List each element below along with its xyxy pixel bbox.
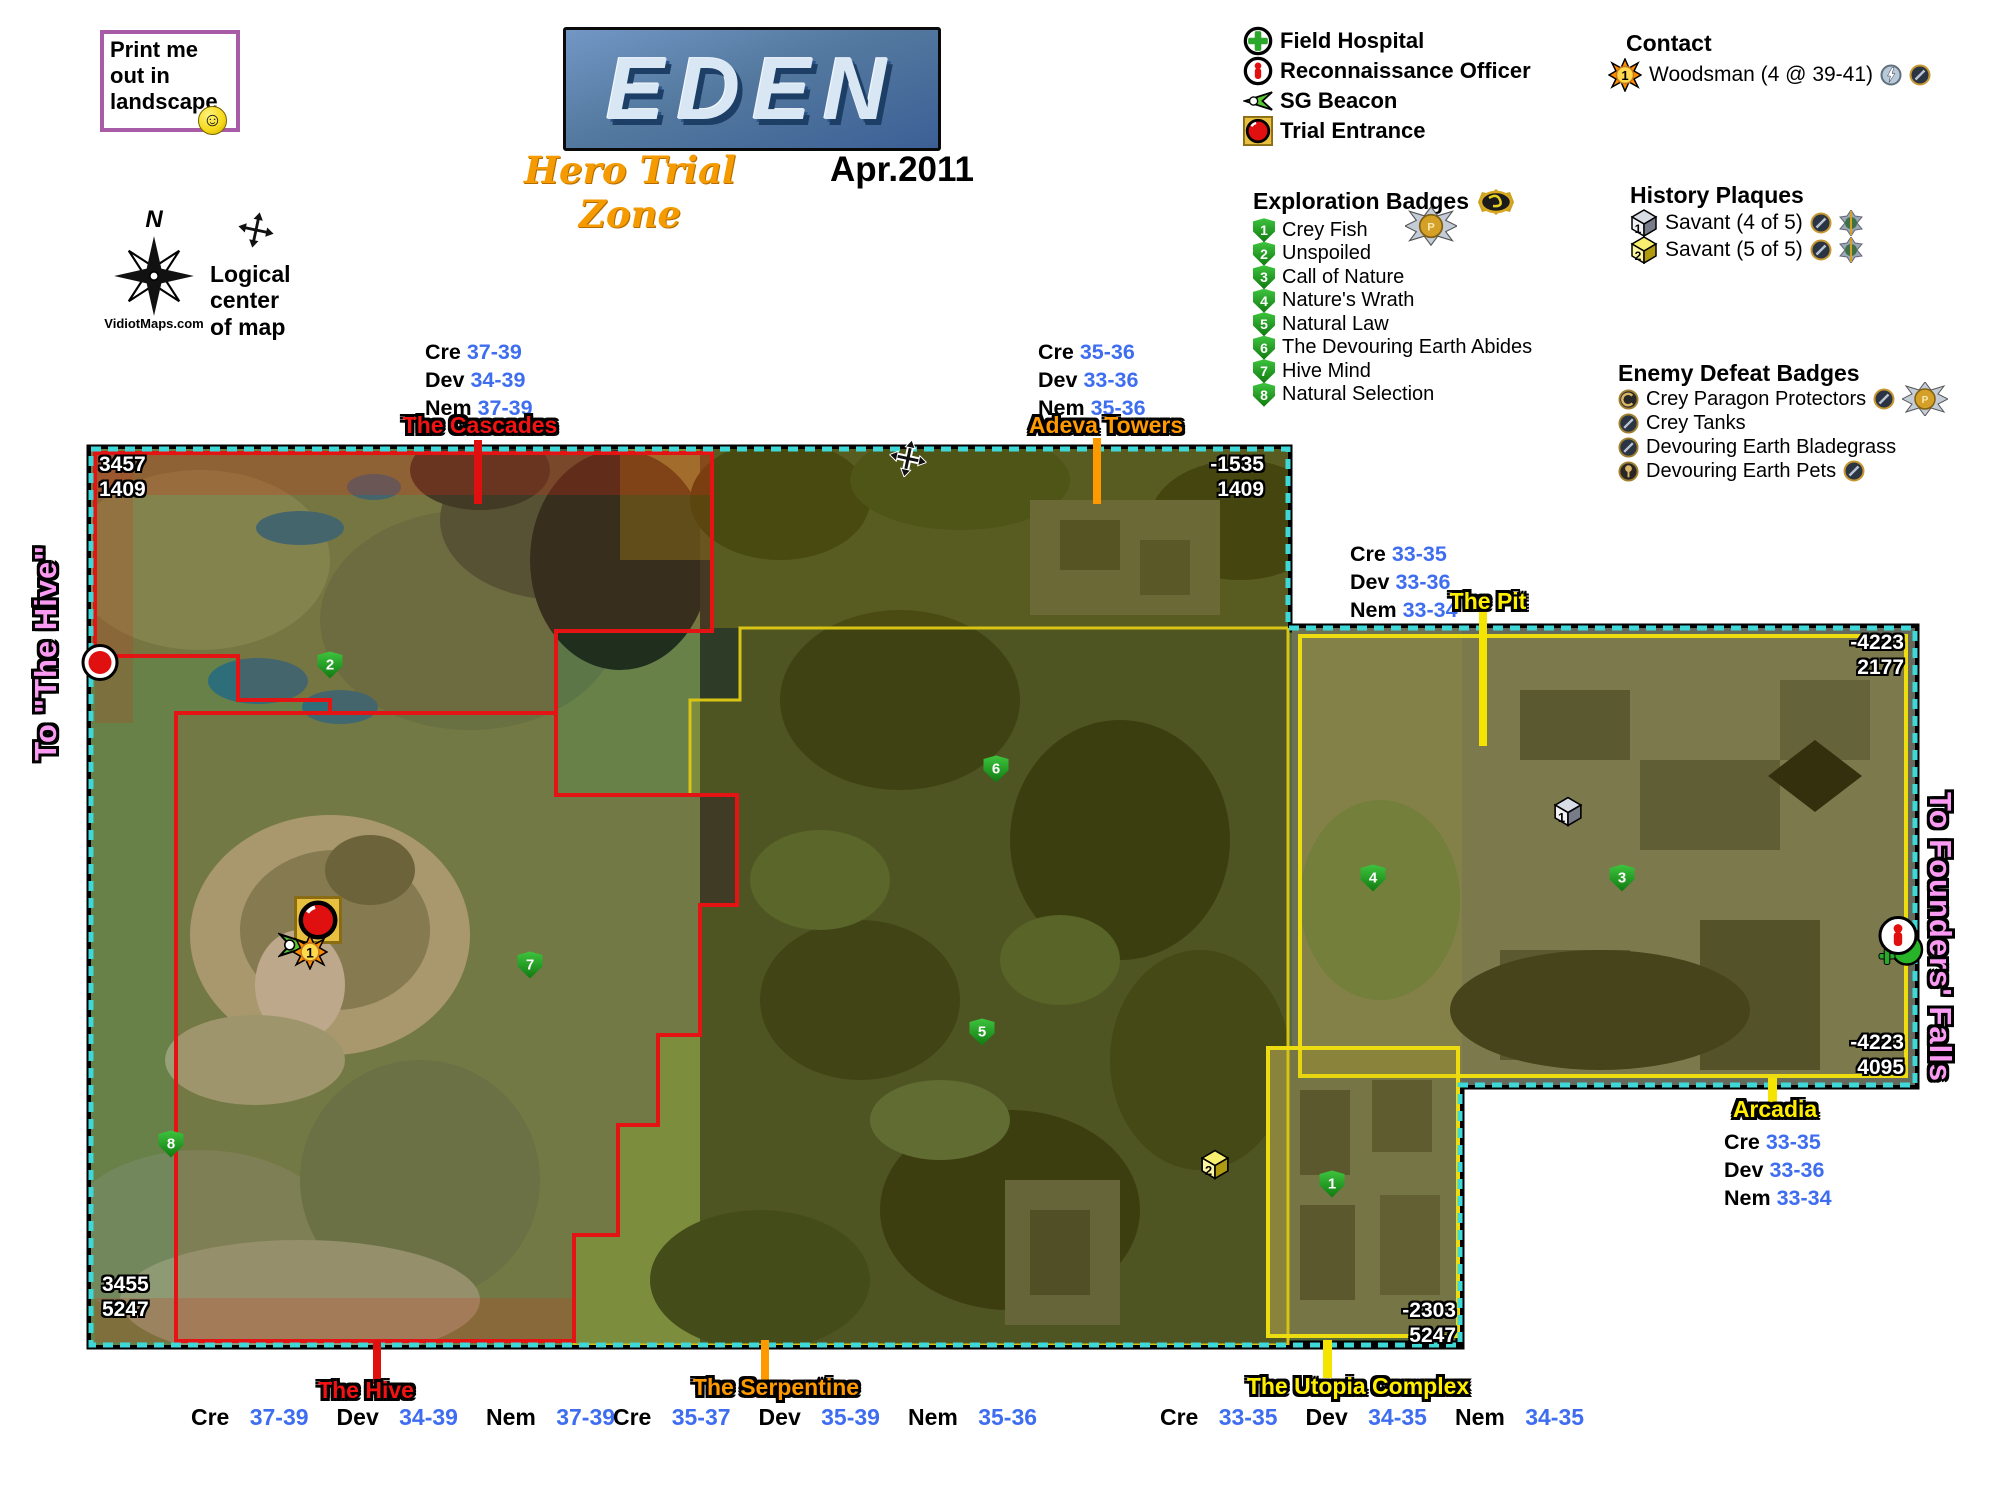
enemy-badge-row: Crey Tanks [1618,411,1948,435]
exploration-badge-row: 4Nature's Wrath [1253,289,1583,313]
legend-row-sg-beacon: SG Beacon [1243,86,1531,116]
exploration-badge-label: Natural Selection [1282,383,1434,406]
plaque-label: Savant (5 of 5) [1665,238,1803,262]
cascades-stats: Cre 37-39 Dev 34-39 Nem 37-39 [425,338,533,422]
exploration-badges-section: Exploration Badges P 1Crey Fish2Unspoile… [1253,190,1583,407]
history-heading: History Plaques [1630,182,1863,209]
svg-text:P: P [1922,395,1929,406]
pp-badge-icon: P [1902,382,1948,416]
enemy-badge-row: Devouring Earth Bladegrass [1618,435,1948,459]
shield-medallion-icon [1618,437,1639,458]
badge-medal-shield-icon [1909,64,1931,86]
svg-text:1: 1 [1621,68,1628,83]
legend-row-trial-entrance: Trial Entrance [1243,116,1531,146]
compass-north-label: N [104,206,204,234]
history-plaques-section: History Plaques 1 Savant (4 of 5) [1630,182,1863,263]
vidiotmaps-credit: VidiotMaps.com [98,316,210,331]
history-plaque-row: 2 Savant (5 of 5) [1630,236,1863,263]
svg-text:P: P [1427,222,1435,234]
badge-number-shield-icon: 7 [1253,359,1275,383]
exploration-badge-row: 5Natural Law [1253,313,1583,337]
zone-title: EDEN [606,38,899,140]
legend-label: Field Hospital [1280,28,1424,54]
adeva-stats: Cre 35-36 Dev 33-36 Nem 35-36 [1038,338,1146,422]
badge-medal-shield-icon [1843,460,1865,482]
enemy-label: Crey Tanks [1646,412,1746,435]
enemy-heading: Enemy Defeat Badges [1618,360,1948,387]
badge-medal-ornate-icon [1839,237,1863,263]
exploration-badge-label: Call of Nature [1282,266,1404,289]
shield-medallion-icon [1618,413,1639,434]
badge-medal-shield-icon [1873,388,1895,410]
title-banner: EDEN [563,27,941,151]
exit-label-the-hive: To "The Hive" [28,545,64,761]
map-date: Apr.2011 [830,150,974,190]
badge-number-shield-icon: 3 [1253,265,1275,289]
zone-label-pit: The Pit [1450,588,1527,615]
compass-rose: N [104,206,204,323]
exploration-badge-label: Unspoiled [1282,242,1371,265]
badge-medal-shield-icon [1810,239,1832,261]
badge-number-shield-icon: 6 [1253,336,1275,360]
badge-number-shield-icon: 4 [1253,289,1275,313]
exploration-badge-row: 7Hive Mind [1253,360,1583,384]
legend-label: Trial Entrance [1280,118,1426,144]
enemy-badge-row: Crey Paragon Protectors P [1618,387,1948,411]
exploration-badge-row: 6The Devouring Earth Abides [1253,336,1583,360]
hive-stats: Cre 37-39Dev 34-39Nem 37-39 [177,1404,629,1431]
tree-medallion-icon [1618,461,1639,482]
coord-bottom-left: 34555247 [102,1272,149,1322]
plaque-cube-icon: 1 [1630,209,1658,237]
field-hospital-icon [1243,26,1273,56]
utopia-stats: Cre 33-35Dev 34-35Nem 34-35 [1146,1404,1598,1431]
coord-top-right: -15351409 [1158,452,1264,502]
badge-medal-shield-icon [1810,212,1832,234]
coord-top-left: 34571409 [99,452,146,502]
eden-map-page: Print me out in landscape ☺ N VidiotMaps… [0,0,2000,1500]
exploration-badge-row: 3Call of Nature [1253,266,1583,290]
enemy-label: Devouring Earth Pets [1646,460,1836,483]
badge-number-shield-icon: 8 [1253,383,1275,407]
serpentine-stats: Cre 35-37Dev 35-39Nem 35-36 [599,1404,1051,1431]
svg-text:2: 2 [1635,249,1642,263]
badge-oval-medal-icon [1476,189,1516,215]
contact-heading: Contact [1626,30,1931,57]
legend-row-field-hospital: Field Hospital [1243,26,1531,56]
badge-number-shield-icon: 1 [1253,218,1275,242]
recon-officer-icon [1243,56,1273,86]
enemy-label: Devouring Earth Bladegrass [1646,436,1896,459]
crey-medallion-icon [1618,389,1639,410]
badge-medal-ornate-icon [1839,210,1863,236]
map-legend: Field Hospital Reconnaissance Officer SG… [1243,26,1531,146]
legend-label: SG Beacon [1280,88,1397,114]
zone-label-adeva: Adeva Towers [1029,412,1183,439]
enemy-label: Crey Paragon Protectors [1646,388,1866,411]
coord-bottom-right: -23035247 [1350,1298,1456,1348]
compass-star-icon [109,234,199,318]
zone-label-cascades: The Cascades [403,412,558,439]
coord-right-lower: -42234095 [1798,1030,1904,1080]
zone-label-arcadia: Arcadia [1733,1096,1817,1123]
zone-label-serpentine: The Serpentine [693,1374,859,1401]
legend-label: Reconnaissance Officer [1280,58,1531,84]
arcadia-stats: Cre 33-35 Dev 33-36 Nem 33-34 [1724,1128,1832,1212]
coord-right-upper: -42232177 [1798,630,1904,680]
contact-row: 1 Woodsman (4 @ 39-41) [1608,57,1931,93]
badge-number-shield-icon: 5 [1253,312,1275,336]
zone-label-utopia: The Utopia Complex [1247,1373,1469,1400]
pit-stats: Cre 33-35 Dev 33-36 Nem 33-34 [1350,540,1458,624]
zone-label-hive: The Hive [318,1377,414,1404]
exploration-badge-label: Crey Fish [1282,219,1368,242]
logical-center-label: Logical center of map [210,261,306,340]
badge-number-shield-icon: 2 [1253,242,1275,266]
exploration-badge-row: 8Natural Selection [1253,383,1583,407]
legend-row-recon-officer: Reconnaissance Officer [1243,56,1531,86]
badge-medal-lightning-icon [1880,64,1902,86]
svg-text:1: 1 [1635,222,1642,236]
logical-center-note: Logical center of map [206,212,306,340]
pp-badge-icon: P [1405,206,1457,251]
exit-label-founders-falls: To Founders' Falls [1922,792,1958,1082]
history-plaque-row: 1 Savant (4 of 5) [1630,209,1863,236]
contact-section: Contact 1 Woodsman (4 @ 39-41) [1608,30,1931,93]
sg-beacon-icon [1243,89,1273,113]
exploration-badge-label: Nature's Wrath [1282,289,1414,312]
enemy-defeat-badges-section: Enemy Defeat Badges Crey Paragon Protect… [1618,360,1948,483]
exploration-badge-label: The Devouring Earth Abides [1282,336,1532,359]
smiley-icon: ☺ [198,106,227,135]
plaque-cube-icon: 2 [1630,236,1658,264]
exploration-badge-label: Natural Law [1282,313,1389,336]
contact-marker-icon: 1 [1608,58,1642,92]
zone-subtitle: Hero Trial Zone [480,148,780,236]
trial-entrance-icon [1243,116,1273,146]
crosshair-icon [235,209,278,252]
exploration-badge-label: Hive Mind [1282,360,1371,383]
contact-label: Woodsman (4 @ 39-41) [1649,63,1873,87]
enemy-badge-row: Devouring Earth Pets [1618,459,1948,483]
plaque-label: Savant (4 of 5) [1665,211,1803,235]
